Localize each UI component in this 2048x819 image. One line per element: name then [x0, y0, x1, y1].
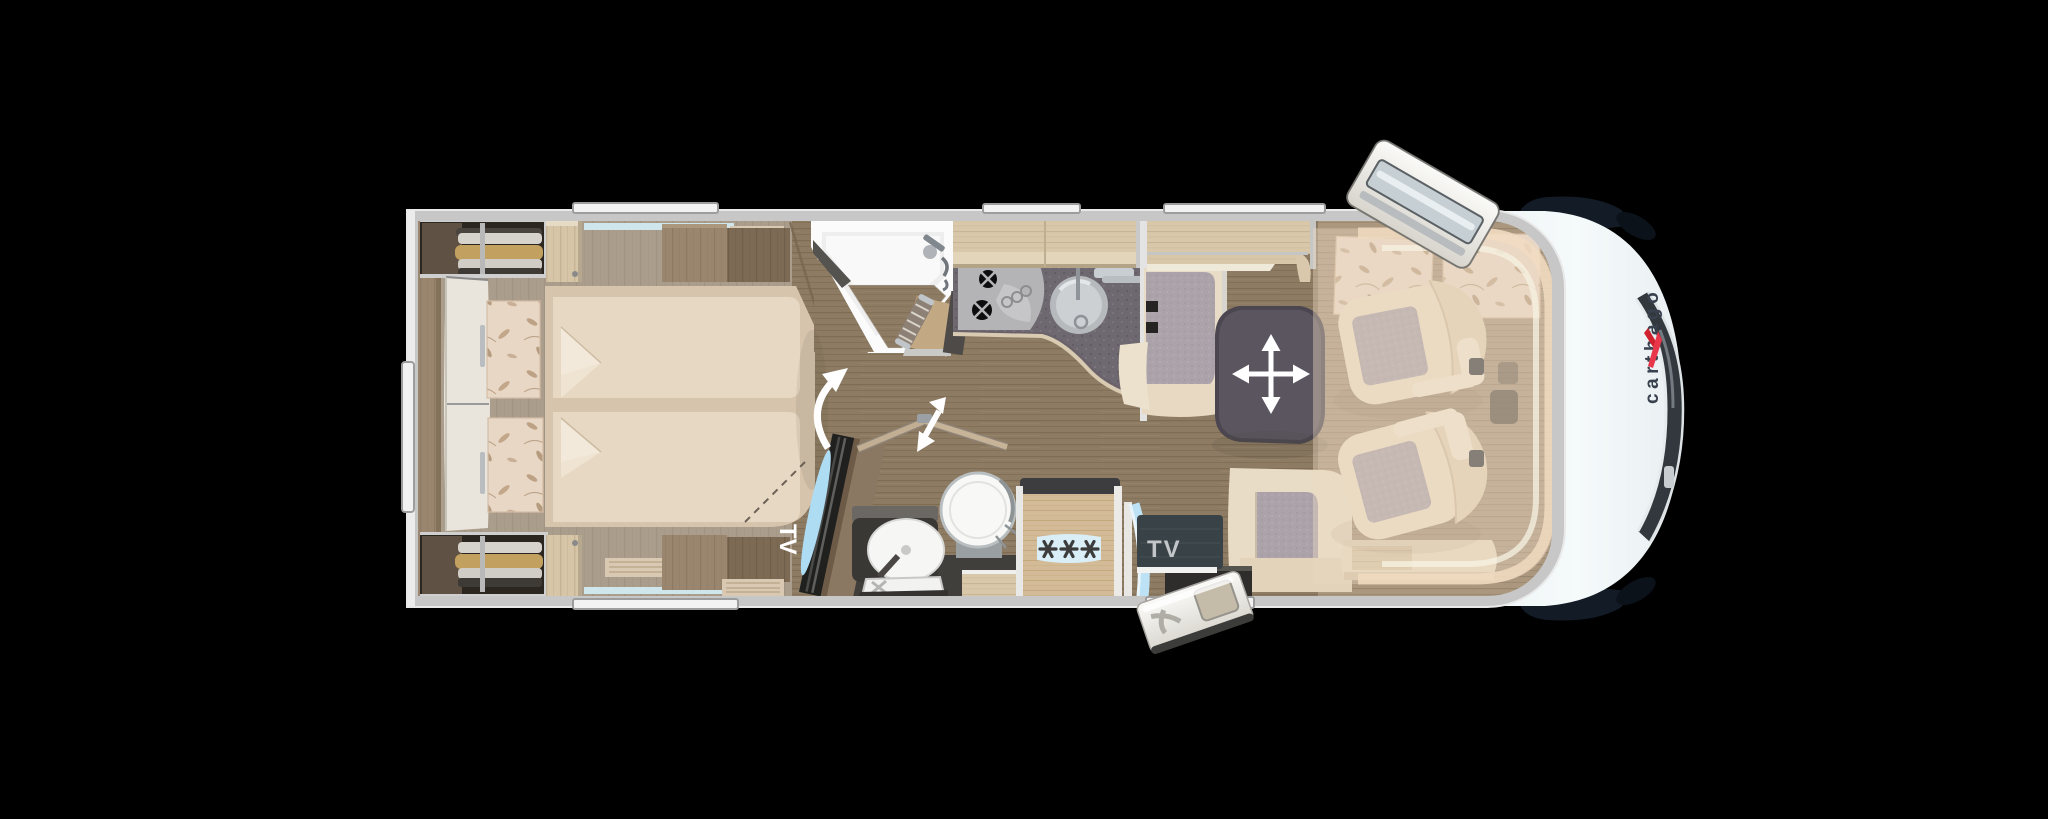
svg-text:TV: TV	[1147, 536, 1182, 563]
svg-text:TV: TV	[774, 524, 801, 555]
